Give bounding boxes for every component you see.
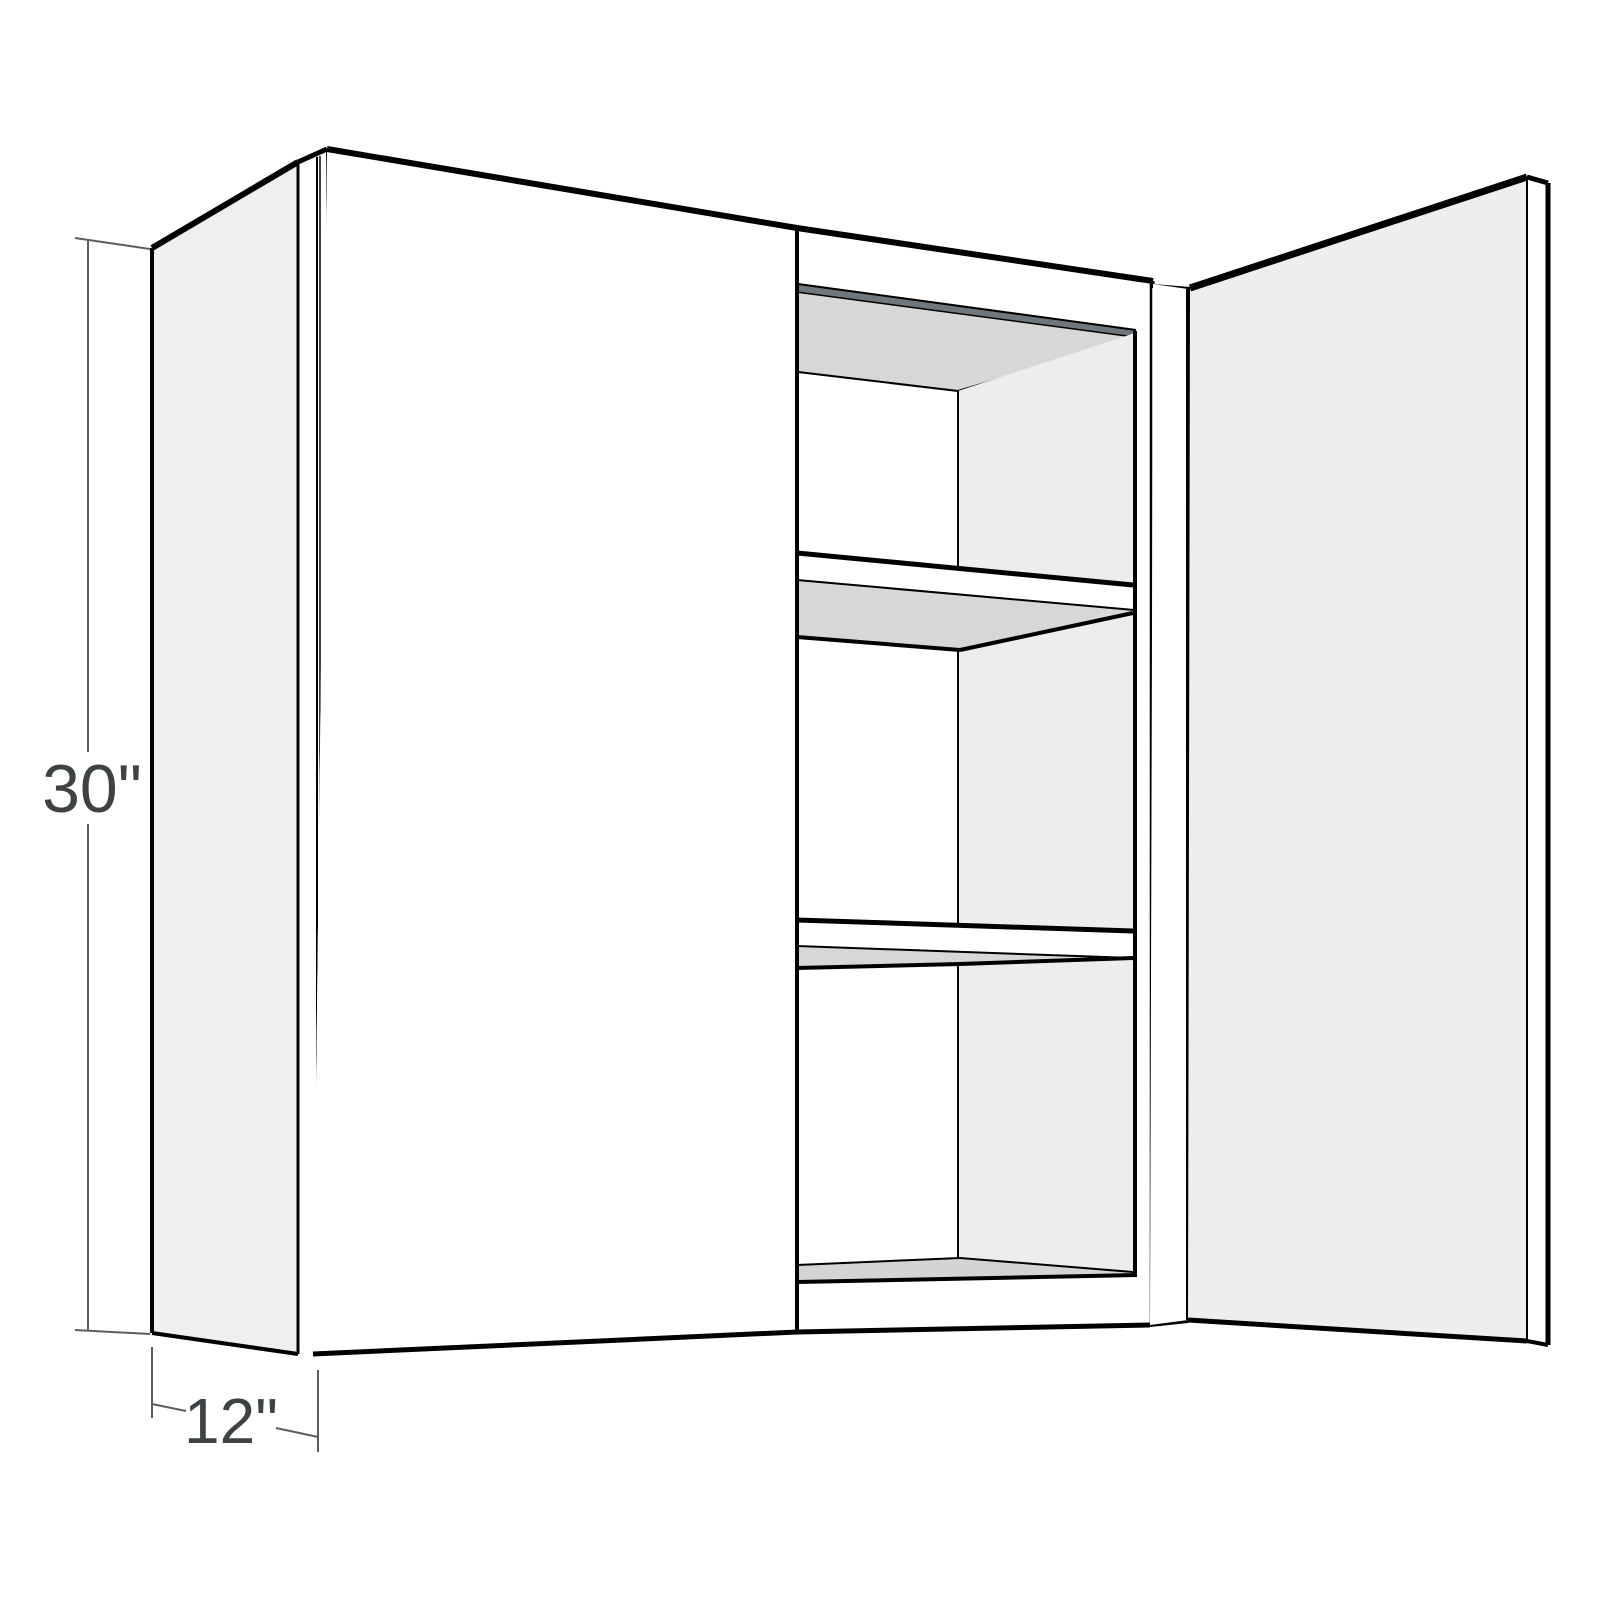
depth-dimension-label: 12"	[184, 1385, 278, 1457]
right-side-panel-edge	[1150, 284, 1188, 1325]
right-door-inner-face	[1188, 177, 1527, 1341]
left-door	[313, 149, 797, 1354]
wall-cabinet-drawing: 30" 12"	[0, 0, 1600, 1600]
interior-right-wall	[958, 333, 1135, 1273]
shelf-middle	[797, 920, 1133, 968]
height-dimension: 30"	[42, 238, 150, 1334]
depth-dimension: 12"	[152, 1347, 318, 1457]
left-side-panel	[152, 162, 298, 1354]
cabinet-illustration: 30" 12"	[0, 0, 1600, 1600]
right-door-open	[1188, 177, 1548, 1345]
height-dimension-label: 30"	[42, 751, 142, 827]
right-door-edge-face	[1527, 177, 1548, 1345]
